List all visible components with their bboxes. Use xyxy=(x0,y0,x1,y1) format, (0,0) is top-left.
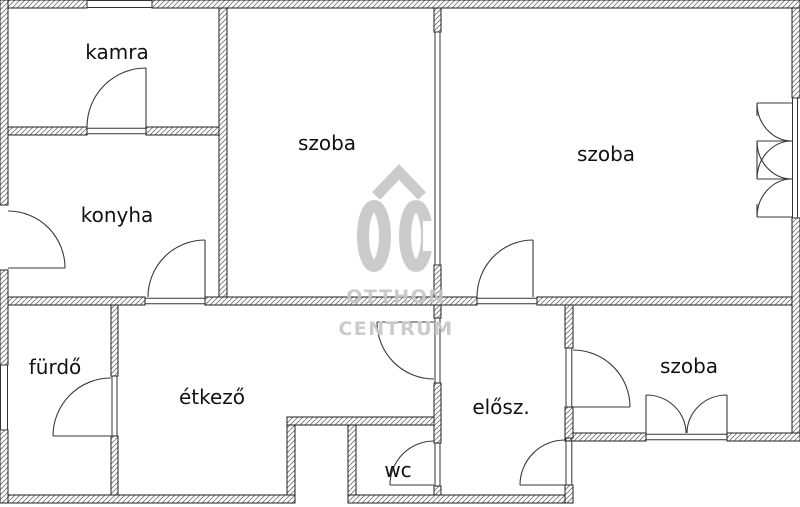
wall-bottom-left xyxy=(0,495,295,503)
wall-top-right xyxy=(152,0,800,8)
wall-right-upper xyxy=(792,8,800,98)
wall-left-lower xyxy=(0,430,8,503)
wall-szoba-br-bottom-right xyxy=(727,433,800,441)
wall-furdo-right-upper xyxy=(111,305,118,376)
wall-wc-left xyxy=(348,425,356,495)
floor-plan-svg: OTTHON CENTRUM kamra szoba szoba konyha … xyxy=(0,0,800,507)
wall-kamra-bottom-left xyxy=(0,127,87,135)
wall-bottom-center xyxy=(348,495,573,503)
watermark-line2: CENTRUM xyxy=(338,318,453,340)
wall-right-lower xyxy=(792,218,800,433)
room-label-eloszoba: elősz. xyxy=(472,395,529,419)
wall-etkezo-right-lower xyxy=(434,486,441,495)
wall-eloszoba-right-lower xyxy=(565,485,573,503)
wall-left-middle xyxy=(0,270,8,365)
wall-etkezo-right-middle xyxy=(434,383,441,443)
room-label-szoba-bottom-right: szoba xyxy=(660,354,718,378)
furdo-window xyxy=(1,365,8,430)
room-label-furdo: fürdő xyxy=(29,355,82,379)
room-label-konyha: konyha xyxy=(81,203,154,227)
wall-wc-top xyxy=(287,417,441,425)
wall-eloszoba-right-upper xyxy=(565,305,573,348)
wall-middle-right xyxy=(537,297,800,305)
wall-left-upper xyxy=(0,0,8,205)
wall-furdo-right-lower xyxy=(111,436,118,495)
room-label-kamra: kamra xyxy=(85,40,148,64)
room-label-szoba-top-middle: szoba xyxy=(298,131,356,155)
room-label-wc: wc xyxy=(384,458,411,482)
kamra-window xyxy=(87,1,152,8)
szoba-right-window-opening xyxy=(793,98,798,218)
wall-niche-left xyxy=(287,425,295,495)
wall-konyha-right xyxy=(219,8,227,297)
wall-szoba-br-bottom-left xyxy=(565,433,646,441)
room-label-szoba-top-right: szoba xyxy=(577,142,635,166)
watermark-letter-c-gap xyxy=(423,221,434,251)
plan-background xyxy=(0,0,800,507)
floor-plan-page: OTTHON CENTRUM kamra szoba szoba konyha … xyxy=(0,0,800,507)
room-label-etkezo: étkező xyxy=(179,385,245,409)
wall-top-left xyxy=(0,0,87,8)
wall-eloszoba-right-middle xyxy=(565,407,573,438)
wall-middle-left xyxy=(0,297,145,305)
wall-kamra-bottom-right xyxy=(146,127,227,135)
watermark-line1: OTTHON xyxy=(346,286,445,308)
wall-partition-top-block xyxy=(434,8,441,32)
